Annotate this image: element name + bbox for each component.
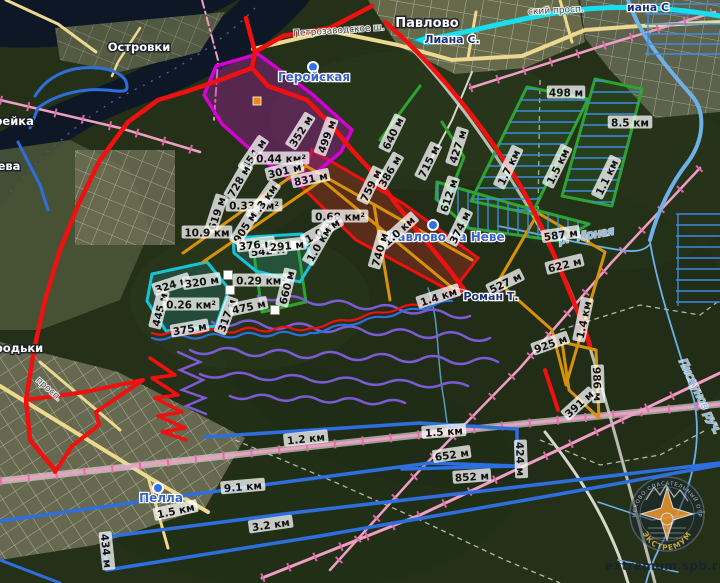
place-label: Лиана С. [424,33,479,46]
measurement-label: 852 м [452,468,491,485]
svg-text:852 м: 852 м [455,470,490,484]
station-dot-icon[interactable] [428,220,438,230]
waypoint-square-icon[interactable] [226,286,235,295]
measurement-label: 0.26 км² [163,298,220,312]
waypoint-square-icon[interactable] [224,271,233,280]
measurement-label: 424 м [513,439,528,478]
place-label: Пелла [139,491,183,505]
svg-text:498 м: 498 м [549,88,583,100]
svg-text:8.5 км: 8.5 км [611,118,649,130]
waypoint-square-icon[interactable] [271,306,280,315]
place-label: Геройская [278,70,350,84]
measurement-label: 8.5 км [608,116,653,130]
measurement-label: 10.9 км [182,226,233,240]
svg-text:0.29 км²: 0.29 км² [236,276,286,288]
svg-text:10.9 км: 10.9 км [184,228,229,240]
place-label: городьки [0,341,43,355]
satellite-map[interactable]: ПавловоОстровкирейкаевагородькиГеройская… [0,0,720,583]
place-label: иана С [627,1,669,14]
place-label: Островки [108,40,171,54]
orange-waypoint-icon[interactable] [253,97,261,105]
place-label: Павлово [395,16,459,31]
place-label: рейка [0,114,34,128]
svg-text:0.26 км²: 0.26 км² [166,300,216,312]
map-canvas[interactable]: ПавловоОстровкирейкаевагородькиГеройская… [0,0,720,583]
watermark-url: extremum.spb.ru [605,558,720,573]
place-label: ева [0,159,20,173]
svg-text:424 м: 424 м [513,442,526,477]
measurement-label: 498 м [547,86,586,100]
